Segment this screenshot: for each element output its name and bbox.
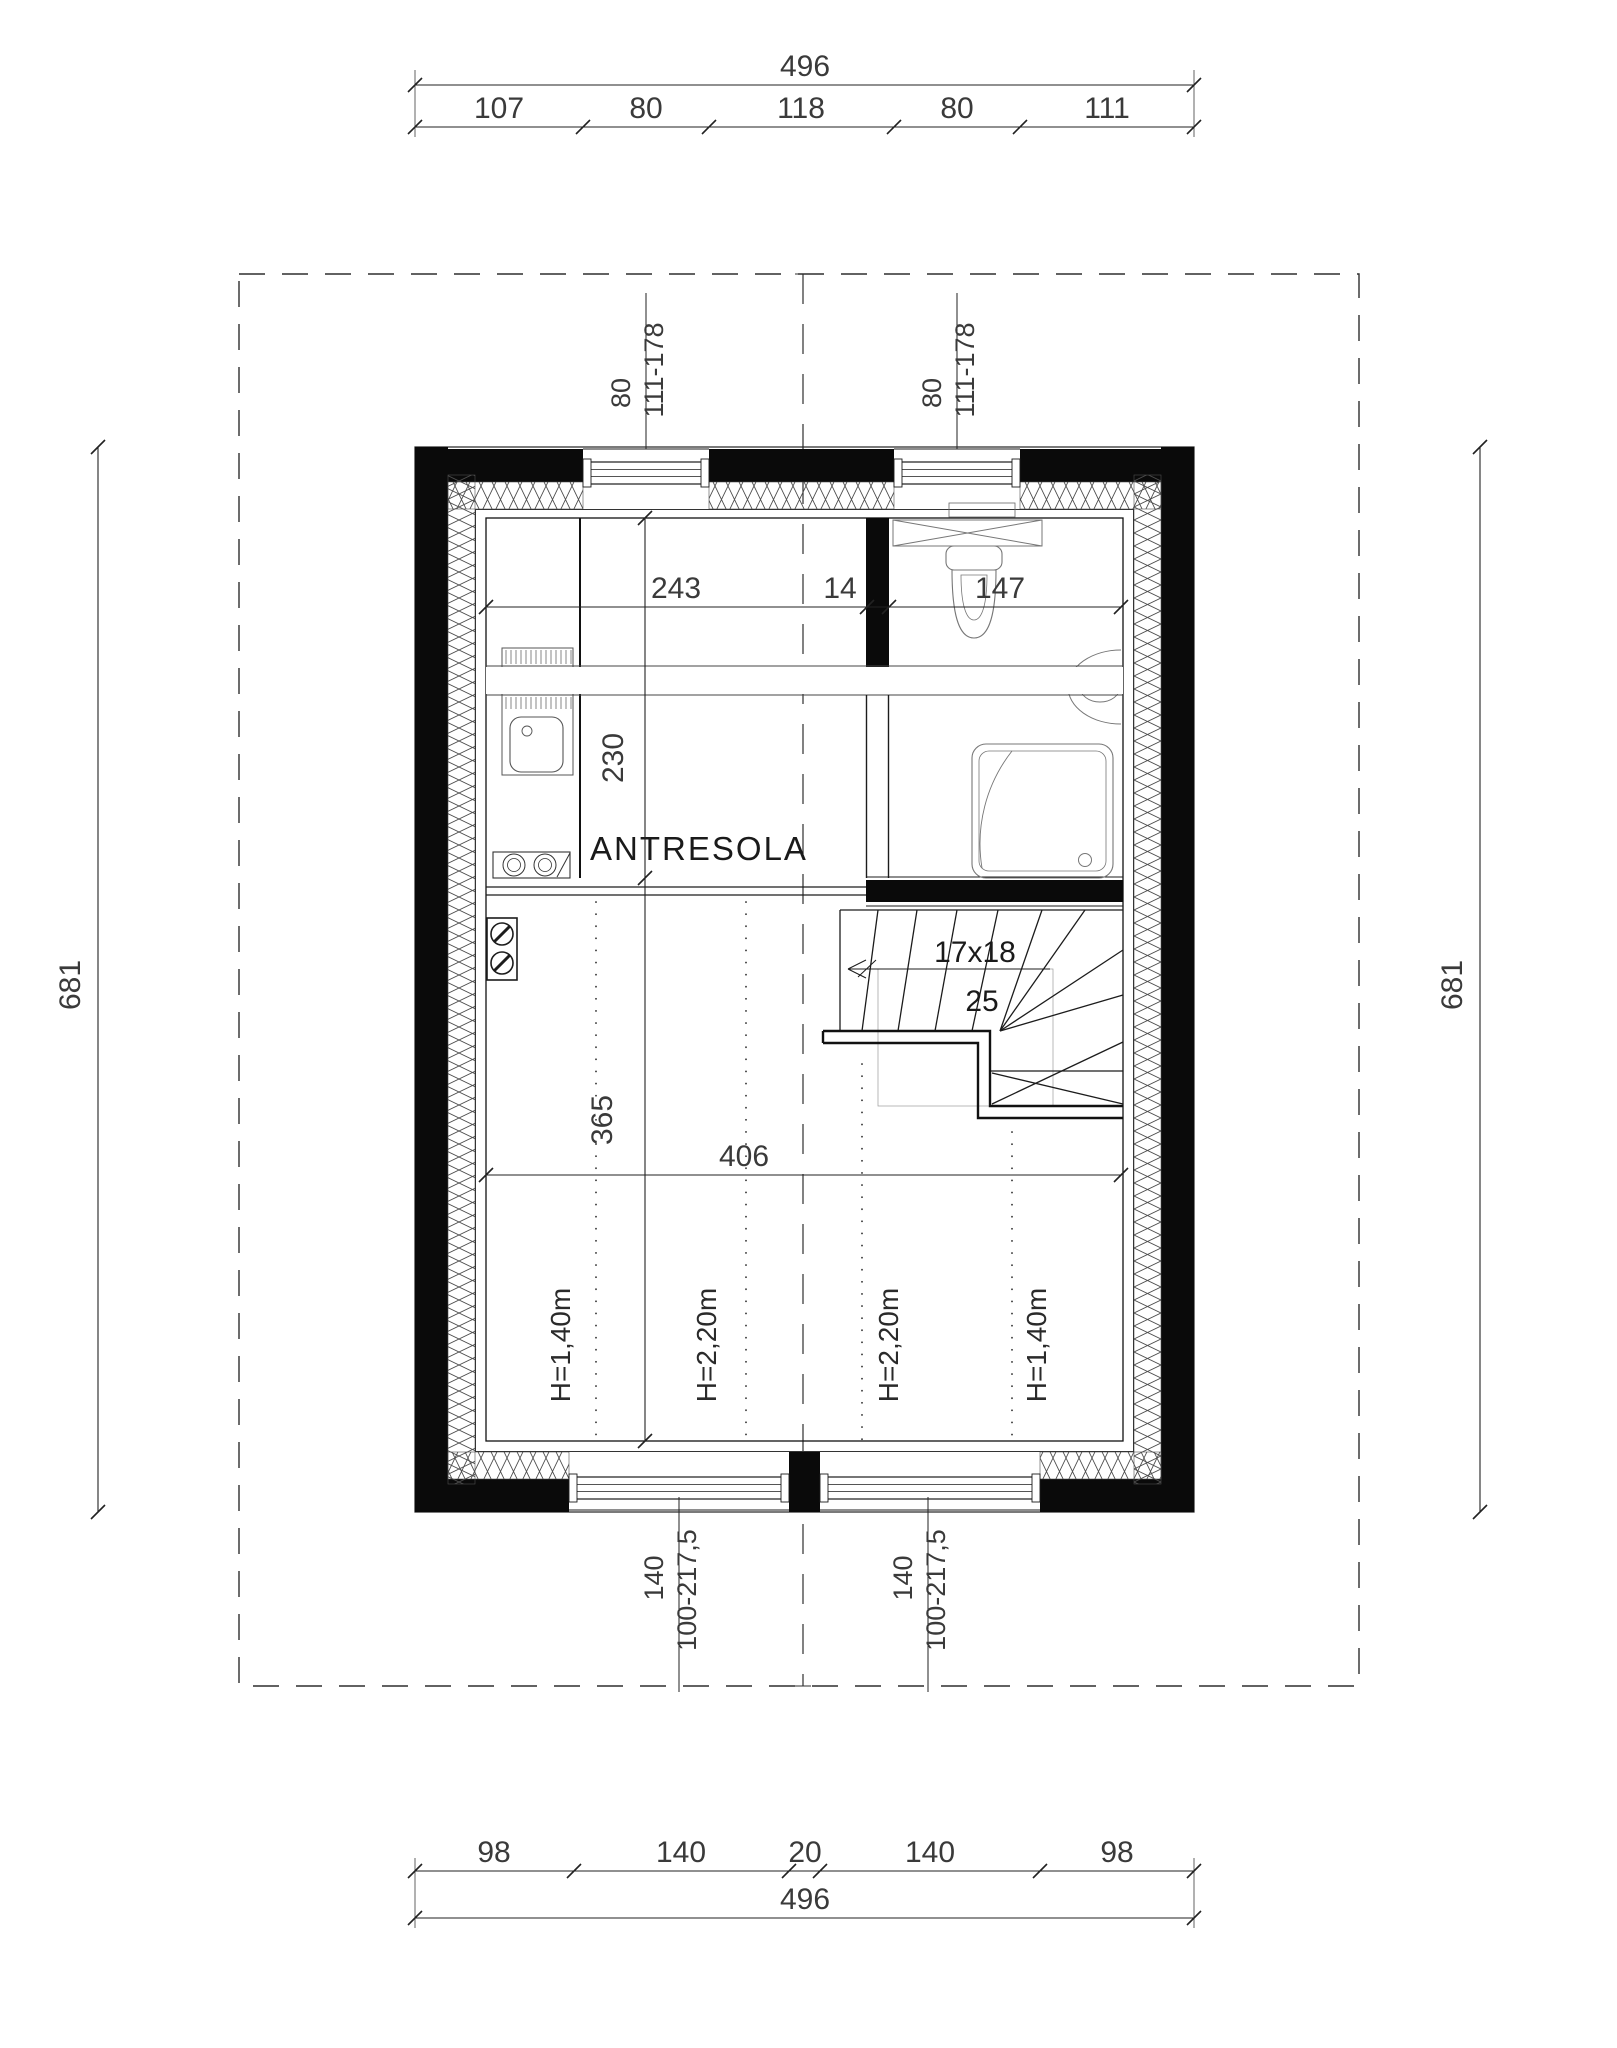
dim-top-total: 496	[780, 50, 830, 83]
slope-break-band	[486, 666, 1123, 695]
dim-top-seg-3: 118	[777, 92, 825, 125]
dim-bot-seg-4: 140	[905, 1836, 955, 1869]
dim-top-seg-2: 80	[629, 92, 662, 125]
dim-bottom-total: 496	[780, 1883, 830, 1916]
dim-406: 406	[719, 1140, 769, 1173]
window-top-1-height: 111-178	[639, 322, 669, 417]
floor-plan-page: 17x18 25 ANTRESOLA H=1,40m H=2,20m H=2,2…	[0, 0, 1617, 2048]
dim-bot-seg-3: 20	[788, 1836, 821, 1869]
dim-14: 14	[823, 572, 856, 605]
window-bottom-2-width: 140	[888, 1555, 918, 1600]
window-bottom-1-height: 100-217,5	[672, 1529, 702, 1651]
dim-top-seg-1: 107	[474, 92, 524, 125]
room-label: ANTRESOLA	[590, 830, 808, 867]
window-top-1-width: 80	[606, 378, 636, 408]
height-label-3: H=2,20m	[873, 1288, 904, 1402]
dim-147: 147	[975, 572, 1025, 605]
dim-top-seg-5: 111	[1084, 92, 1130, 125]
window-bottom-1-width: 140	[639, 1555, 669, 1600]
dim-right-total: 681	[1436, 960, 1469, 1010]
dim-243: 243	[651, 572, 701, 605]
window-bottom-2-height: 100-217,5	[921, 1529, 951, 1651]
window-top-2-width: 80	[917, 378, 947, 408]
height-label-2: H=2,20m	[691, 1288, 722, 1402]
window-top-2-height: 111-178	[950, 322, 980, 417]
stair-width-label: 25	[965, 985, 998, 1018]
paper-background	[0, 0, 1617, 2048]
dim-bot-seg-2: 140	[656, 1836, 706, 1869]
dim-230: 230	[597, 733, 630, 783]
dim-365: 365	[586, 1095, 619, 1145]
dim-bot-seg-1: 98	[477, 1836, 510, 1869]
stair-steps-label: 17x18	[934, 936, 1016, 969]
dim-left-total: 681	[54, 960, 87, 1010]
dim-top-seg-4: 80	[940, 92, 973, 125]
height-label-1: H=1,40m	[545, 1288, 576, 1402]
floor-plan-svg: 17x18 25 ANTRESOLA H=1,40m H=2,20m H=2,2…	[0, 0, 1617, 2048]
height-label-4: H=1,40m	[1021, 1288, 1052, 1402]
bathroom-bottom-wall	[866, 880, 1123, 902]
dim-bot-seg-5: 98	[1100, 1836, 1133, 1869]
